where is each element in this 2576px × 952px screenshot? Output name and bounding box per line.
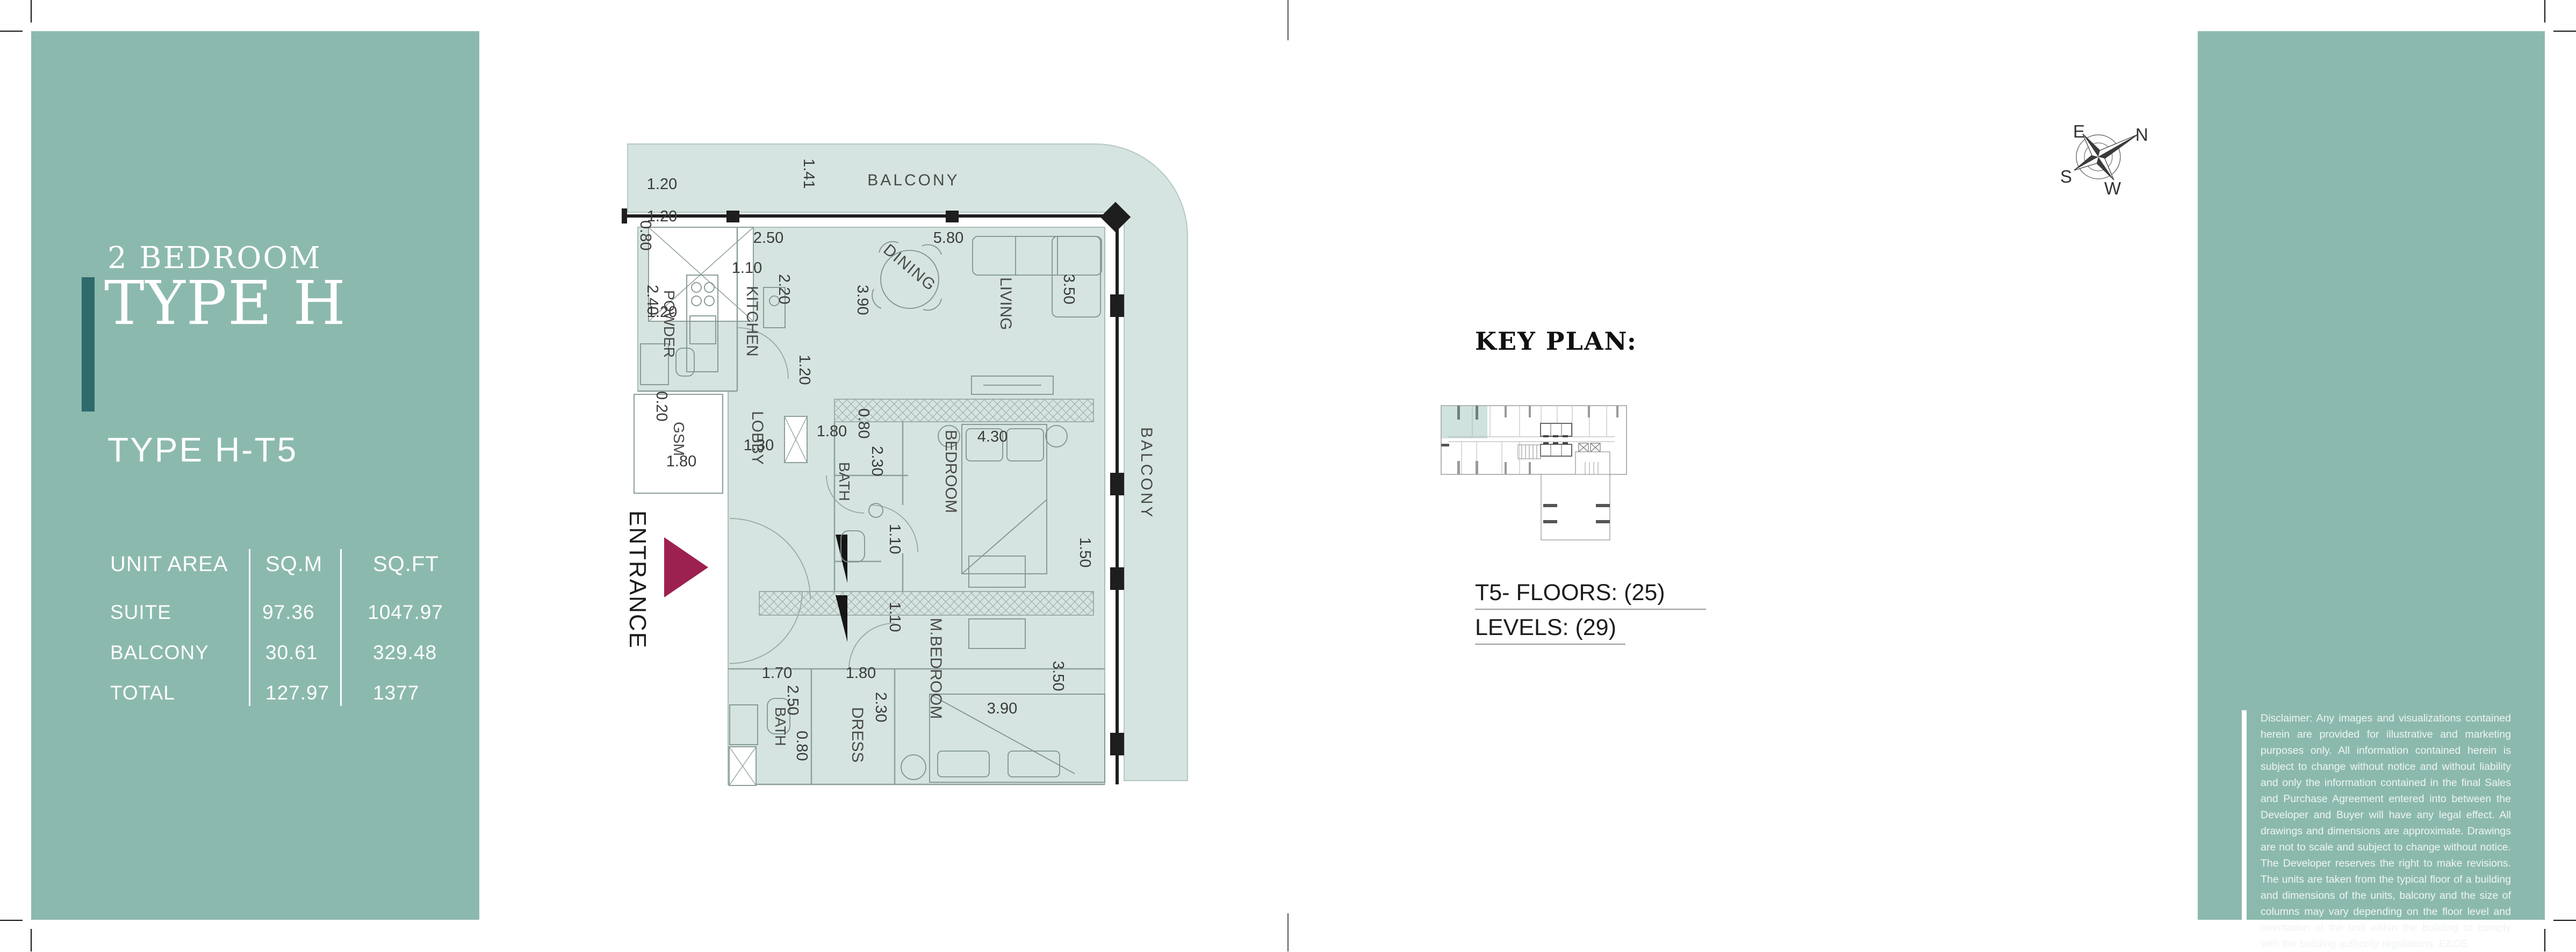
label-dress: DRESS bbox=[848, 707, 866, 762]
table-row: TOTAL 127.97 1377 bbox=[110, 682, 443, 704]
label-living: LIVING bbox=[997, 277, 1014, 330]
row-sqm: 97.36 bbox=[245, 601, 350, 624]
fold-mark bbox=[1287, 0, 1289, 40]
col-header-unit-area: UNIT AREA bbox=[110, 552, 248, 576]
label-balcony-top: BALCONY bbox=[867, 171, 959, 189]
label-bath-upper: BATH bbox=[836, 462, 853, 501]
dim: 1.10 bbox=[886, 524, 903, 554]
label-balcony-right: BALCONY bbox=[1138, 427, 1155, 519]
row-sqft: 1377 bbox=[356, 682, 443, 704]
shower-box bbox=[729, 747, 756, 785]
dim: 3.90 bbox=[987, 700, 1017, 717]
crop-mark bbox=[2553, 31, 2576, 32]
dim: 2.20 bbox=[775, 274, 793, 304]
dim: 3.50 bbox=[1049, 661, 1067, 691]
row-sqft: 1047.97 bbox=[350, 601, 443, 624]
shaft-hatch-band bbox=[759, 592, 1093, 615]
dim: 4.30 bbox=[977, 428, 1008, 445]
compass-letter: N bbox=[2135, 125, 2148, 145]
label-gsm: GSM bbox=[671, 422, 687, 456]
tower-info: T5- FLOORS: (25) LEVELS: (29) bbox=[1475, 581, 1706, 645]
dim: 0.20 bbox=[653, 391, 670, 421]
compass-letter: S bbox=[2060, 167, 2072, 186]
crop-mark bbox=[31, 0, 32, 23]
dim: 0.80 bbox=[855, 408, 872, 438]
accent-bar bbox=[82, 277, 95, 412]
entrance-arrow bbox=[664, 537, 708, 597]
dim: 1.20 bbox=[647, 304, 677, 321]
brochure-spread: { "left_panel": { "category": "2 BEDROOM… bbox=[0, 0, 2576, 951]
unit-subtitle: TYPE H-T5 bbox=[107, 430, 298, 470]
dim: 0.80 bbox=[793, 731, 810, 761]
row-sqft: 329.48 bbox=[356, 641, 443, 664]
fold-mark bbox=[1287, 913, 1289, 951]
crop-mark bbox=[0, 31, 23, 32]
dim: 1.80 bbox=[817, 423, 847, 440]
row-label: TOTAL bbox=[110, 682, 248, 704]
table-divider bbox=[340, 549, 342, 706]
crop-mark bbox=[31, 929, 32, 951]
dim: 1.20 bbox=[647, 176, 677, 193]
dim: 1.30 bbox=[744, 437, 774, 454]
keyplan-drawing bbox=[1429, 395, 1639, 551]
dim: 1.80 bbox=[846, 665, 876, 682]
dim: 1.41 bbox=[800, 158, 817, 189]
compass-letter: W bbox=[2104, 178, 2121, 198]
dim: 2.30 bbox=[872, 692, 889, 722]
table-divider bbox=[249, 549, 250, 706]
table-row: SUITE 97.36 1047.97 bbox=[110, 601, 443, 624]
col-header-sqm: SQ.M bbox=[248, 552, 356, 576]
dim: 0.80 bbox=[637, 220, 654, 250]
disclaimer-text: Disclaimer: Any images and visualization… bbox=[2242, 710, 2511, 952]
dim: 2.50 bbox=[753, 229, 783, 247]
dim: 1.50 bbox=[1076, 537, 1093, 567]
left-title-panel: 2 BEDROOM TYPE H TYPE H-T5 UNIT AREA SQ.… bbox=[31, 31, 479, 920]
row-label: SUITE bbox=[110, 601, 245, 624]
dim: 1.10 bbox=[732, 259, 762, 277]
dim: 1.70 bbox=[762, 665, 792, 682]
dim: 1.10 bbox=[886, 602, 903, 632]
crop-mark bbox=[2553, 920, 2576, 921]
compass-letter: E bbox=[2073, 121, 2085, 141]
label-entrance: ENTRANCE bbox=[624, 510, 651, 649]
crop-mark bbox=[2544, 0, 2545, 23]
label-powder: POWDER bbox=[661, 290, 678, 358]
compass-rose-icon: ENSW bbox=[2047, 102, 2176, 210]
unit-type-title: TYPE H bbox=[104, 269, 347, 338]
row-sqm: 30.61 bbox=[248, 641, 356, 664]
floors-line: T5- FLOORS: (25) bbox=[1475, 581, 1706, 610]
col-header-sqft: SQ.FT bbox=[356, 552, 443, 576]
row-sqm: 127.97 bbox=[248, 682, 356, 704]
unit-area-table: UNIT AREA SQ.M SQ.FT SUITE 97.36 1047.97… bbox=[110, 552, 443, 722]
dim: 2.30 bbox=[868, 446, 886, 476]
keyplan-highlighted-unit bbox=[1442, 406, 1487, 438]
table-header-row: UNIT AREA SQ.M SQ.FT bbox=[110, 552, 443, 576]
dim: 1.80 bbox=[666, 453, 696, 470]
label-m-bedroom: M.BEDROOM bbox=[927, 618, 945, 719]
dim: 2.50 bbox=[784, 685, 801, 715]
crop-mark bbox=[2544, 929, 2545, 951]
table-row: BALCONY 30.61 329.48 bbox=[110, 641, 443, 664]
row-label: BALCONY bbox=[110, 641, 248, 664]
dim: 1.20 bbox=[796, 355, 813, 385]
shaft-hatch-band bbox=[834, 399, 1093, 422]
lobby-shaft-box bbox=[785, 416, 807, 463]
label-bedroom: BEDROOM bbox=[942, 430, 960, 513]
levels-line: LEVELS: (29) bbox=[1475, 616, 1625, 645]
crop-mark bbox=[0, 920, 23, 921]
dim: 3.90 bbox=[854, 285, 871, 315]
floor-plan: BALCONYBALCONYDININGLIVINGKITCHENPOWDERL… bbox=[613, 134, 1212, 817]
label-kitchen: KITCHEN bbox=[743, 286, 761, 357]
dim: 3.50 bbox=[1060, 274, 1077, 304]
dim: 5.80 bbox=[933, 229, 963, 247]
keyplan-title: KEY PLAN: bbox=[1475, 327, 1637, 356]
